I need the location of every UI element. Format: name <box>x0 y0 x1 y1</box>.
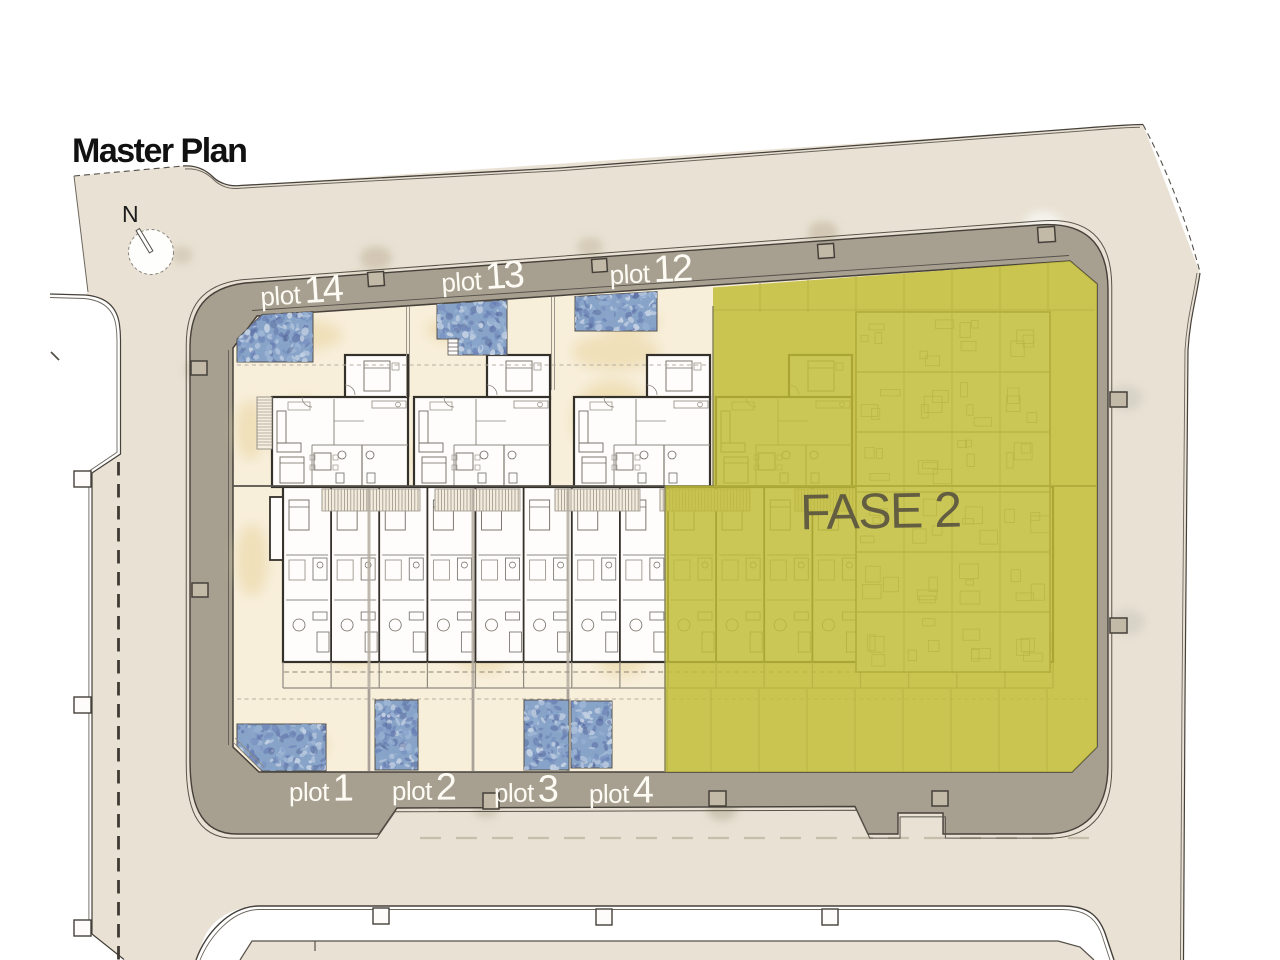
svg-text:N: N <box>122 201 139 227</box>
svg-text:Master Plan: Master Plan <box>72 132 246 170</box>
svg-text:FASE 2: FASE 2 <box>800 482 961 541</box>
